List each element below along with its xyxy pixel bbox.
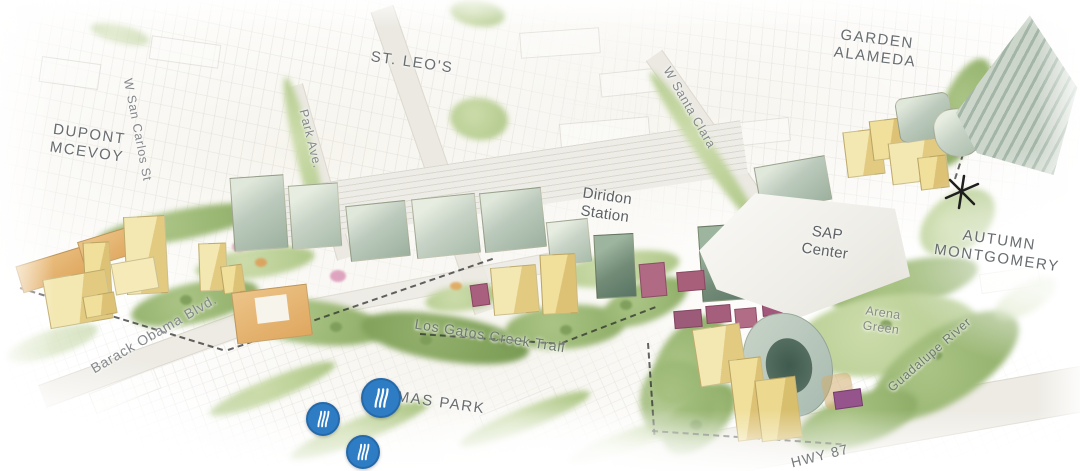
- place-label-diridon-station: Diridon Station: [579, 184, 633, 227]
- building: [754, 376, 802, 443]
- context-building: [519, 27, 601, 59]
- building: [639, 262, 668, 298]
- building-courtyard: [255, 294, 290, 324]
- building: [539, 253, 578, 315]
- building: [705, 304, 731, 324]
- building: [229, 174, 288, 252]
- building: [288, 182, 342, 249]
- place-label-sap-center: SAP Center: [800, 222, 851, 265]
- building: [673, 309, 702, 329]
- trail-marker-icon: [346, 435, 380, 469]
- trail-marker-icon: [361, 378, 401, 418]
- building: [593, 233, 636, 299]
- tree: [420, 335, 432, 345]
- tree: [560, 325, 572, 335]
- building: [345, 200, 411, 262]
- building: [220, 264, 246, 295]
- building: [676, 270, 706, 292]
- asterisk-icon: [944, 174, 980, 210]
- building: [470, 283, 491, 307]
- tree: [690, 420, 702, 430]
- building: [479, 187, 547, 253]
- building: [833, 388, 863, 410]
- park-accent: [330, 270, 346, 282]
- park-accent: [255, 258, 267, 267]
- tree: [620, 300, 632, 310]
- building: [490, 264, 540, 316]
- trail-marker-icon: [306, 402, 340, 436]
- place-label-arena-green: Arena Green: [862, 303, 903, 338]
- building: [411, 193, 481, 259]
- illustrative-site-plan-map: DUPONT MCEVOY ST. LEO'S GARDEN ALAMEDA A…: [0, 0, 1080, 471]
- tree: [330, 322, 342, 332]
- park-accent: [450, 282, 462, 290]
